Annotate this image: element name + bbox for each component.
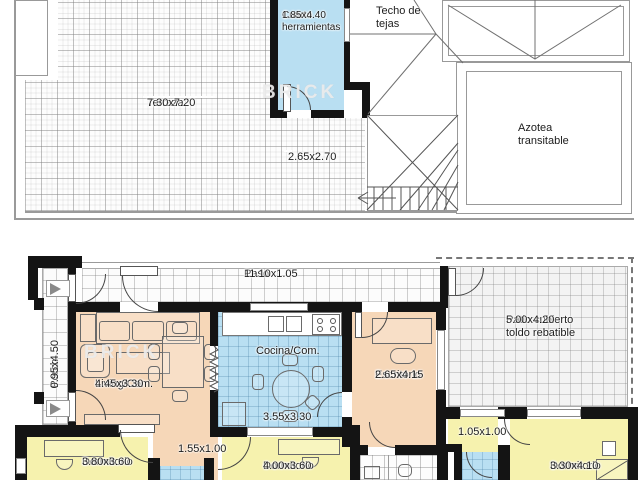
wall-segment xyxy=(388,302,440,312)
sofa-cushion xyxy=(99,321,130,341)
room-dims: 5.00x4.20 xyxy=(506,314,554,327)
upper-plan-bottom-boundary xyxy=(14,218,634,220)
watermark-text: BRICK xyxy=(84,342,159,364)
room-dims: 4.00x3.60 xyxy=(263,460,311,473)
room-dims: 11.10x1.05 xyxy=(244,268,298,281)
room-dims: 3.30x4.10 xyxy=(550,460,598,473)
upper-plan-inner-boundary xyxy=(25,211,458,213)
stove-burner xyxy=(330,326,336,332)
wall-segment xyxy=(498,445,510,480)
kitchen-sink xyxy=(286,316,302,332)
sofa-cushion xyxy=(132,321,163,341)
wall-segment xyxy=(311,110,344,118)
door-arc xyxy=(504,419,530,445)
desk-chair xyxy=(390,348,416,364)
wall-segment xyxy=(204,458,214,480)
window xyxy=(247,427,313,436)
room-dims: 7.30x7.20 xyxy=(147,97,195,110)
awning-dashed-right xyxy=(631,257,633,414)
room-dims: 1.85x4.40 xyxy=(282,10,326,22)
watermark-text: BRICK xyxy=(262,82,337,104)
side-table xyxy=(80,314,96,342)
door-swing-triangle xyxy=(50,283,61,295)
wall-segment xyxy=(15,425,120,437)
window xyxy=(527,409,581,417)
kitchen-chair xyxy=(252,374,264,390)
room-name: Azotea transitable xyxy=(518,122,588,148)
wall-segment xyxy=(628,407,638,480)
window xyxy=(16,458,26,474)
room-dims: 0.95x4.50 xyxy=(49,340,61,388)
desk xyxy=(44,440,104,457)
door-leaf xyxy=(120,266,158,276)
window xyxy=(460,409,505,417)
wall-segment xyxy=(395,445,440,455)
room-dims: 1.55x1.00 xyxy=(178,443,226,456)
dining-chair xyxy=(172,322,188,334)
stove-burner xyxy=(317,318,323,324)
roof-block-inner xyxy=(448,6,624,56)
desk xyxy=(278,439,340,455)
door-leaf xyxy=(355,312,362,338)
stove xyxy=(312,314,340,335)
door-leaf xyxy=(448,268,456,296)
stove-burner xyxy=(317,326,323,332)
wall-segment xyxy=(68,302,76,392)
bath-sink xyxy=(364,466,380,479)
window xyxy=(437,330,445,390)
wall-segment xyxy=(210,390,218,437)
floor-plan-canvas: BRICK BRICK Terraza 7.30x7.20 Cuarto her… xyxy=(0,0,640,480)
wall-segment xyxy=(28,256,38,300)
kitchen-cabinet xyxy=(222,402,246,426)
label-terraza: Terraza 7.30x7.20 xyxy=(143,96,215,98)
label-porch: Porch 0.95x4.50 xyxy=(41,316,69,388)
paso-top-line xyxy=(82,262,440,263)
awning-dashed-top xyxy=(436,257,634,259)
dining-chair xyxy=(204,344,216,360)
wall-segment xyxy=(210,312,218,346)
wall-segment xyxy=(440,266,448,308)
kitchen-sink xyxy=(268,316,284,332)
door-arc xyxy=(122,276,158,312)
stove-burner xyxy=(330,318,336,324)
wall-segment xyxy=(342,302,352,392)
nightstand xyxy=(602,441,616,456)
label-escalera-dims: 2.65x2.70 xyxy=(284,150,292,152)
kitchen-chair xyxy=(312,366,324,382)
window xyxy=(250,303,308,311)
wall-segment xyxy=(581,407,628,419)
dining-chair xyxy=(172,390,188,402)
porch-column xyxy=(34,298,44,310)
wall-segment xyxy=(344,0,350,8)
wall-segment xyxy=(443,407,460,419)
wall-segment xyxy=(454,452,462,480)
wall-segment xyxy=(76,302,120,312)
room-dims: 3.55x3.30 xyxy=(263,411,311,424)
room-dims: 2.65x4.15 xyxy=(375,369,423,382)
room-dims: 2.65x2.70 xyxy=(288,151,336,164)
dining-chair xyxy=(204,366,216,382)
wall-segment xyxy=(362,82,370,118)
room-dims: 1.05x1.00 xyxy=(458,426,506,439)
terrace-planter xyxy=(15,0,48,76)
stairwell xyxy=(367,115,458,211)
wall-segment xyxy=(437,444,448,480)
room-name: Techo de tejas xyxy=(376,5,428,31)
room-name: Cocina/Com. xyxy=(256,345,320,358)
toilet xyxy=(398,464,412,477)
bath-partition xyxy=(388,455,389,480)
room-dims: 4.45x3.30 xyxy=(95,378,143,391)
door-swing-triangle xyxy=(50,403,61,415)
porch-column xyxy=(34,392,44,404)
dining-table xyxy=(162,336,204,388)
room-dims: 3.80x3.60 xyxy=(82,456,130,469)
wall-segment xyxy=(218,427,247,437)
room-bath-center-floor xyxy=(160,466,204,480)
wall-segment xyxy=(350,425,360,480)
